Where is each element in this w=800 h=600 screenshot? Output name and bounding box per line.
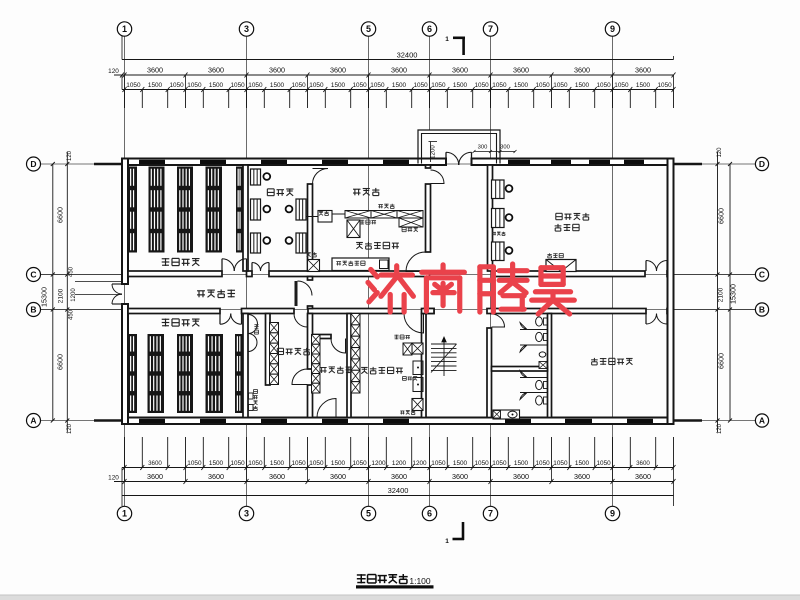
svg-text:3600: 3600 xyxy=(574,66,590,75)
svg-text:120: 120 xyxy=(108,68,119,75)
svg-text:1050: 1050 xyxy=(187,82,202,89)
svg-text:1500: 1500 xyxy=(514,460,529,467)
svg-text:6600: 6600 xyxy=(717,208,726,224)
svg-text:1050: 1050 xyxy=(230,460,245,467)
svg-text:3600: 3600 xyxy=(452,66,468,75)
svg-text:120: 120 xyxy=(108,475,119,482)
svg-text:1050: 1050 xyxy=(657,82,672,89)
svg-text:1500: 1500 xyxy=(270,460,285,467)
svg-text:3600: 3600 xyxy=(147,472,163,481)
svg-text:1050: 1050 xyxy=(248,460,263,467)
svg-text:1500: 1500 xyxy=(453,460,468,467)
svg-text:5: 5 xyxy=(366,509,371,519)
svg-text:300: 300 xyxy=(478,145,488,151)
svg-text:3600: 3600 xyxy=(269,472,285,481)
svg-text:1050: 1050 xyxy=(492,460,507,467)
svg-text:450: 450 xyxy=(69,266,75,277)
svg-text:3600: 3600 xyxy=(330,66,346,75)
svg-text:1: 1 xyxy=(122,24,127,34)
svg-text:1050: 1050 xyxy=(474,82,489,89)
svg-text:9: 9 xyxy=(610,24,615,34)
svg-text:32400: 32400 xyxy=(397,51,418,60)
svg-text:6600: 6600 xyxy=(717,353,726,369)
svg-text:1050: 1050 xyxy=(370,82,385,89)
svg-text:1: 1 xyxy=(122,509,127,519)
svg-text:120: 120 xyxy=(717,423,723,434)
svg-text:B: B xyxy=(759,305,765,315)
svg-text:1500: 1500 xyxy=(514,82,529,89)
svg-text:D: D xyxy=(759,159,765,169)
svg-text:3600: 3600 xyxy=(330,472,346,481)
svg-text:1500: 1500 xyxy=(636,82,651,89)
svg-text:1200: 1200 xyxy=(431,145,437,159)
svg-text:1050: 1050 xyxy=(248,82,263,89)
svg-text:3600: 3600 xyxy=(391,472,407,481)
svg-text:3600: 3600 xyxy=(513,472,529,481)
svg-text:1200: 1200 xyxy=(392,460,407,467)
svg-text:1050: 1050 xyxy=(291,82,306,89)
svg-text:1500: 1500 xyxy=(209,82,224,89)
svg-text:1050: 1050 xyxy=(535,82,550,89)
svg-text:7: 7 xyxy=(488,24,493,34)
svg-text:1500: 1500 xyxy=(148,82,163,89)
svg-text:C: C xyxy=(759,270,765,280)
svg-text:3: 3 xyxy=(244,24,249,34)
svg-text:1050: 1050 xyxy=(553,460,568,467)
svg-text:3600: 3600 xyxy=(391,66,407,75)
svg-text:1050: 1050 xyxy=(596,460,611,467)
svg-text:1500: 1500 xyxy=(209,460,224,467)
svg-text:15300: 15300 xyxy=(729,284,738,304)
svg-text:1500: 1500 xyxy=(331,460,346,467)
svg-text:6600: 6600 xyxy=(56,207,65,223)
svg-text:1050: 1050 xyxy=(553,82,568,89)
svg-text:1050: 1050 xyxy=(309,460,324,467)
svg-text:450: 450 xyxy=(69,309,75,320)
svg-text:3600: 3600 xyxy=(208,472,224,481)
svg-text:3600: 3600 xyxy=(147,66,163,75)
svg-text:32400: 32400 xyxy=(388,486,409,495)
svg-text:1050: 1050 xyxy=(413,82,428,89)
svg-text:3600: 3600 xyxy=(635,472,651,481)
svg-text:C: C xyxy=(30,270,36,280)
svg-text:1050: 1050 xyxy=(126,82,141,89)
svg-text:1050: 1050 xyxy=(291,460,306,467)
svg-text:15300: 15300 xyxy=(40,287,49,307)
svg-text:120: 120 xyxy=(67,423,73,434)
svg-text:1200: 1200 xyxy=(371,460,386,467)
svg-text:120: 120 xyxy=(717,147,723,158)
svg-text:6600: 6600 xyxy=(56,354,65,370)
svg-text:1500: 1500 xyxy=(270,82,285,89)
svg-text:1: 1 xyxy=(445,538,449,545)
svg-text:3600: 3600 xyxy=(269,66,285,75)
svg-text:2100: 2100 xyxy=(58,288,65,303)
svg-text:3600: 3600 xyxy=(513,66,529,75)
svg-text:300: 300 xyxy=(500,145,510,151)
svg-text:1050: 1050 xyxy=(187,460,202,467)
svg-text:B: B xyxy=(30,305,36,315)
svg-text:1050: 1050 xyxy=(169,82,184,89)
svg-text:1050: 1050 xyxy=(596,82,611,89)
svg-text:5: 5 xyxy=(366,24,371,34)
svg-text:7: 7 xyxy=(488,509,493,519)
svg-text:2100: 2100 xyxy=(718,287,725,302)
svg-text:3600: 3600 xyxy=(574,472,590,481)
svg-text:120: 120 xyxy=(67,150,73,161)
svg-text:1: 1 xyxy=(445,36,449,43)
svg-text:1050: 1050 xyxy=(352,82,367,89)
svg-text:3600: 3600 xyxy=(452,472,468,481)
svg-text:1050: 1050 xyxy=(431,82,446,89)
svg-text:1050: 1050 xyxy=(431,460,446,467)
svg-text:3: 3 xyxy=(244,509,249,519)
svg-text:1500: 1500 xyxy=(392,82,407,89)
svg-text:3600: 3600 xyxy=(636,460,650,467)
svg-text:1500: 1500 xyxy=(331,82,346,89)
svg-text:6: 6 xyxy=(427,24,432,34)
svg-text:1050: 1050 xyxy=(474,460,489,467)
svg-text:9: 9 xyxy=(610,509,615,519)
svg-text:3600: 3600 xyxy=(208,66,224,75)
svg-text:6: 6 xyxy=(427,509,432,519)
svg-text:1500: 1500 xyxy=(575,82,590,89)
svg-text:D: D xyxy=(30,159,36,169)
svg-text:1050: 1050 xyxy=(230,82,245,89)
svg-text:1500: 1500 xyxy=(453,82,468,89)
svg-text:1050: 1050 xyxy=(535,460,550,467)
svg-text:1050: 1050 xyxy=(614,82,629,89)
svg-text:1050: 1050 xyxy=(352,460,367,467)
svg-text:1:100: 1:100 xyxy=(409,576,431,586)
svg-text:1500: 1500 xyxy=(575,460,590,467)
svg-text:1050: 1050 xyxy=(309,82,324,89)
svg-text:1200: 1200 xyxy=(412,460,427,467)
svg-text:3600: 3600 xyxy=(635,66,651,75)
svg-text:A: A xyxy=(759,416,765,426)
svg-text:3600: 3600 xyxy=(148,460,162,467)
svg-text:1050: 1050 xyxy=(492,82,507,89)
svg-text:A: A xyxy=(30,416,36,426)
